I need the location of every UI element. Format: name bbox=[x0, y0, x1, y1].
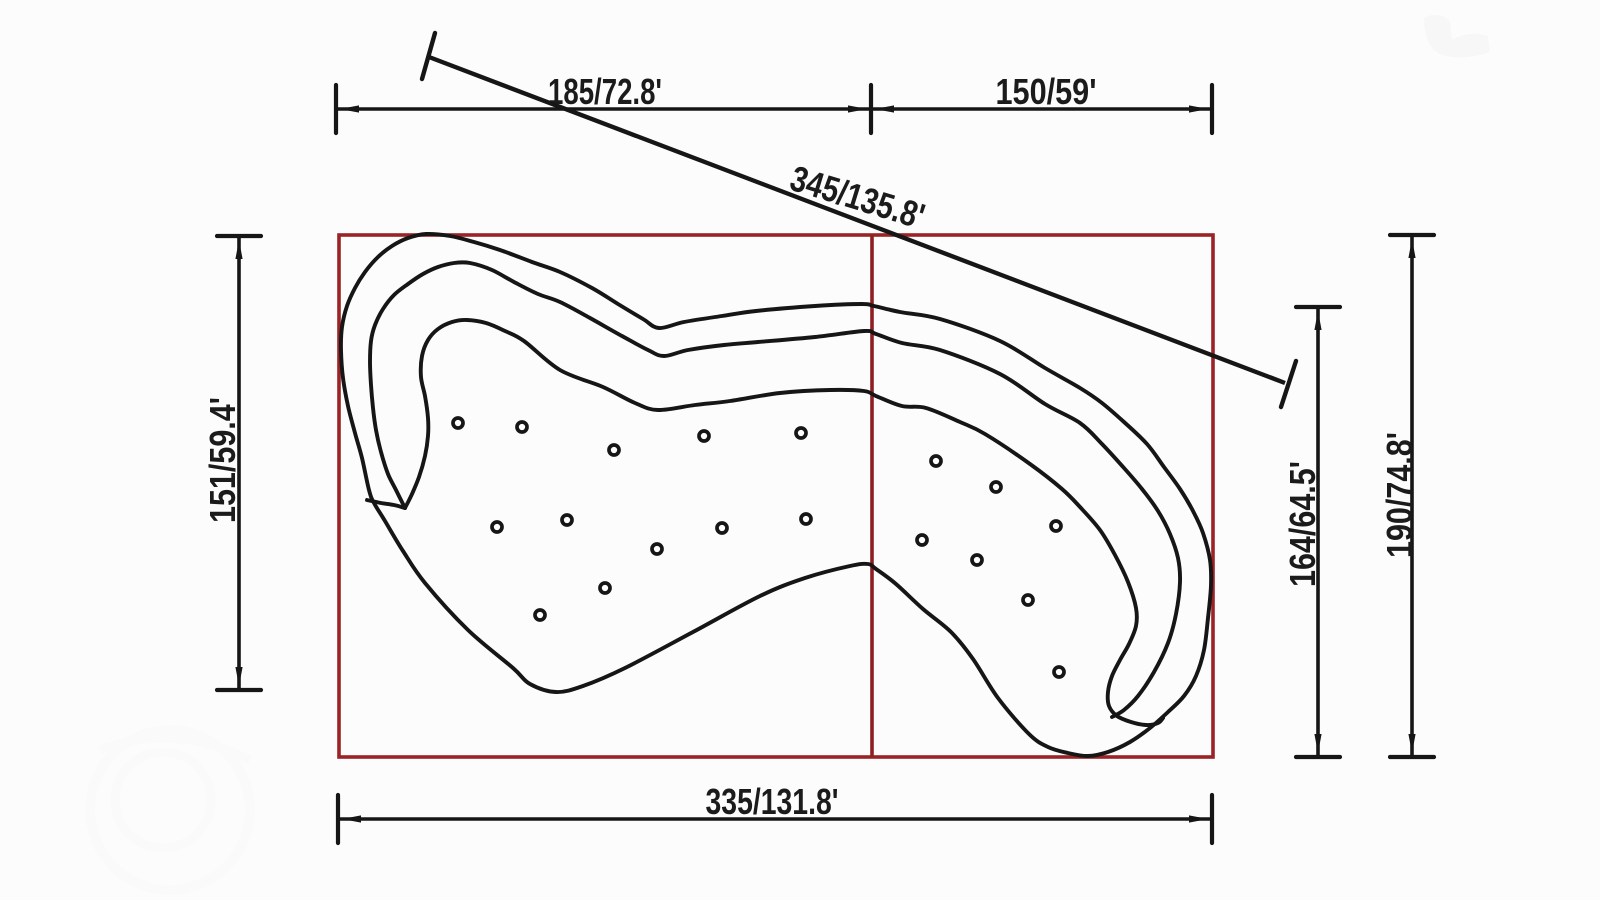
svg-text:151/59.4': 151/59.4' bbox=[202, 397, 243, 523]
svg-text:190/74.8': 190/74.8' bbox=[1379, 432, 1420, 558]
svg-text:185/72.8': 185/72.8' bbox=[548, 71, 662, 112]
svg-text:150/59': 150/59' bbox=[996, 71, 1097, 112]
svg-text:164/64.5': 164/64.5' bbox=[1282, 461, 1323, 587]
svg-text:335/131.8': 335/131.8' bbox=[706, 781, 839, 822]
